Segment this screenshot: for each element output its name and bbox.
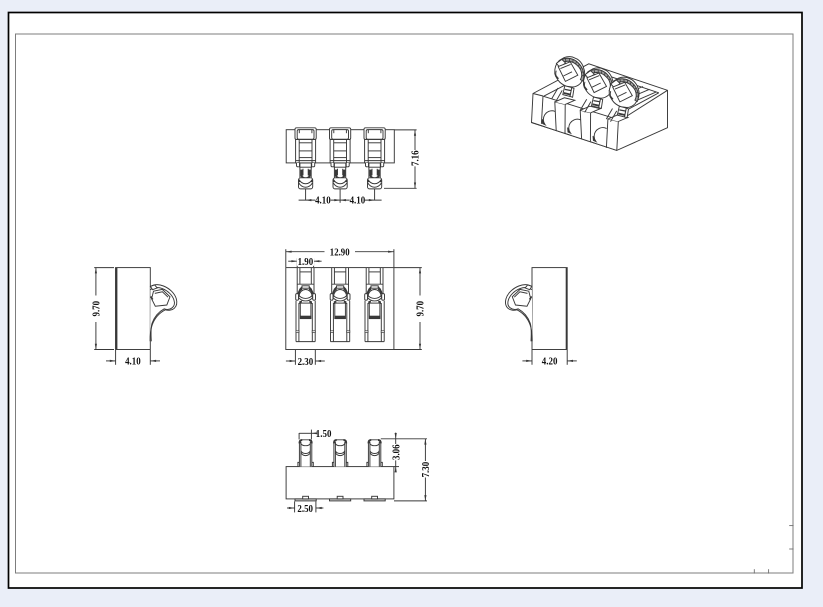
svg-text:3.06: 3.06: [390, 444, 402, 460]
svg-text:7.16: 7.16: [410, 150, 422, 166]
svg-text:4.10: 4.10: [350, 195, 366, 207]
svg-text:1.50: 1.50: [316, 428, 332, 440]
svg-text:4.20: 4.20: [542, 356, 558, 368]
svg-text:7.30: 7.30: [420, 461, 432, 477]
svg-text:1.90: 1.90: [298, 256, 314, 268]
svg-text:4.10: 4.10: [315, 195, 331, 207]
svg-text:9.70: 9.70: [91, 300, 103, 316]
svg-text:12.90: 12.90: [330, 246, 350, 258]
svg-text:2.50: 2.50: [297, 503, 313, 515]
svg-text:2.30: 2.30: [298, 356, 314, 368]
svg-text:4.10: 4.10: [125, 356, 141, 368]
svg-text:9.70: 9.70: [415, 300, 427, 316]
